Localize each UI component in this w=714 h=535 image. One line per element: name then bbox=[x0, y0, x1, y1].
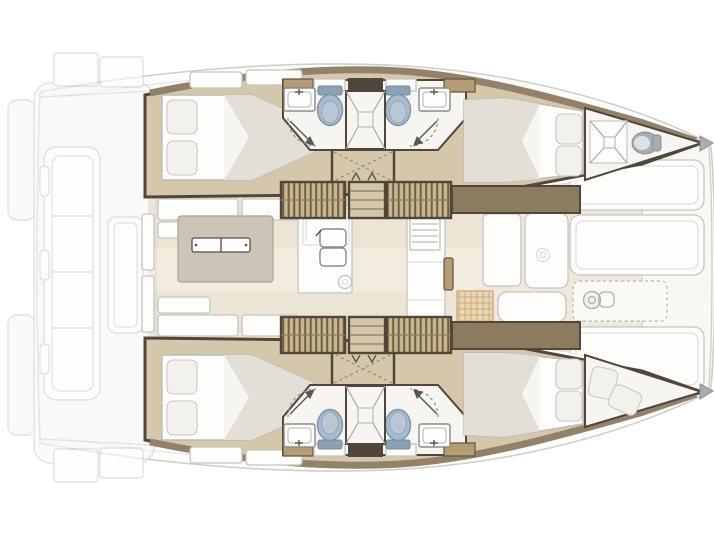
head-toilet-aft bbox=[318, 86, 343, 126]
crew-toilet bbox=[632, 132, 661, 154]
sun-pad-2 bbox=[570, 215, 704, 275]
aft-cockpit bbox=[8, 53, 154, 482]
davit-box-bottom-1 bbox=[54, 449, 98, 482]
settee-bottom-3 bbox=[158, 297, 210, 313]
toilet-tank bbox=[386, 86, 410, 95]
foredeck bbox=[570, 142, 712, 393]
kettle bbox=[339, 276, 352, 289]
galley-island bbox=[178, 216, 273, 282]
cockpit-bench bbox=[40, 147, 100, 400]
davit-box-top-1 bbox=[54, 53, 98, 86]
companionway-stairs bbox=[281, 182, 451, 218]
forward-berth-pillow-2 bbox=[556, 146, 582, 176]
bench-armrest-3 bbox=[40, 344, 49, 374]
head-toilet-fwd bbox=[386, 86, 411, 126]
cabinet-door-2 bbox=[525, 213, 568, 288]
companionway-opening bbox=[348, 78, 383, 91]
crew-toilet-seat bbox=[634, 136, 650, 150]
toilet-seat bbox=[390, 101, 407, 123]
aft-sliding-door-panel-1 bbox=[142, 214, 154, 270]
cockpit-table-top bbox=[108, 217, 143, 333]
shower-tray bbox=[346, 91, 385, 149]
island-handle-dot-2 bbox=[245, 244, 248, 247]
cabin-shelf-1 bbox=[190, 72, 242, 88]
transom-step-top bbox=[8, 100, 35, 220]
forward-cabin bbox=[452, 98, 583, 213]
counter-locker bbox=[444, 258, 453, 290]
transom-step-bottom bbox=[8, 315, 35, 435]
davit-box-top-2 bbox=[100, 57, 143, 87]
galley-sink-basin-2 bbox=[320, 248, 346, 266]
forward-table bbox=[498, 292, 566, 322]
galley-sink-basin-1 bbox=[320, 229, 346, 247]
davit-box-bottom-2 bbox=[100, 448, 143, 478]
settee-bottom-1 bbox=[158, 315, 238, 336]
cockpit-table bbox=[108, 217, 143, 333]
bench-armrest-2 bbox=[40, 250, 49, 280]
forward-berth-pillow-1 bbox=[556, 114, 582, 144]
crew-toilet-tank bbox=[653, 135, 661, 151]
catamaran-floor-plan bbox=[0, 0, 714, 535]
toilet-tank bbox=[318, 86, 342, 95]
aft-berth-pillow-2 bbox=[167, 141, 197, 175]
head-sink-aft bbox=[284, 88, 315, 111]
aft-berth-pillow-1 bbox=[167, 100, 197, 134]
toilet-seat bbox=[322, 101, 339, 123]
floor-plan-stage bbox=[0, 0, 714, 535]
windlass-gypsy bbox=[584, 292, 601, 309]
central-shower-stall bbox=[346, 91, 385, 149]
cabinet-door-1 bbox=[483, 214, 521, 286]
forward-cabinet-band bbox=[452, 186, 580, 213]
aft-sliding-door-panel-2 bbox=[142, 276, 154, 332]
island-handle-dot-1 bbox=[195, 244, 198, 247]
head-sink-fwd bbox=[419, 88, 450, 111]
bench-armrest-1 bbox=[40, 166, 49, 196]
